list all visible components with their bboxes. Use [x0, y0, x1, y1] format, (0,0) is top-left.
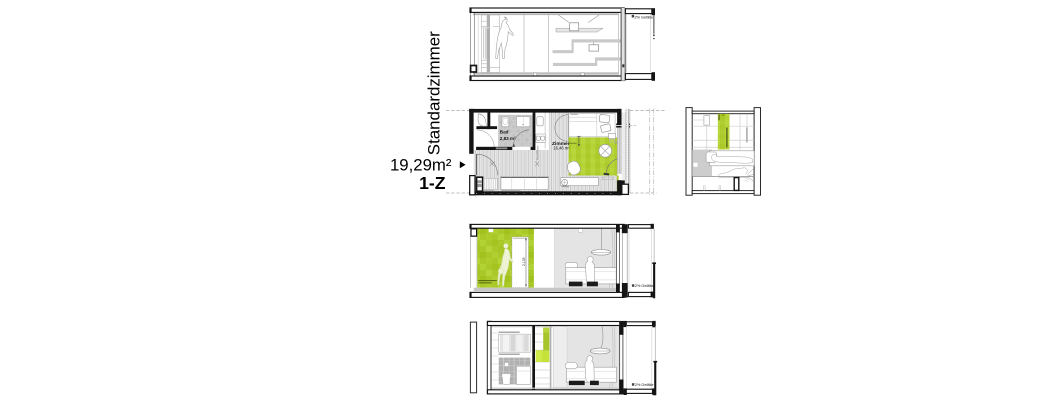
svg-text:2,83 m²: 2,83 m² [500, 136, 516, 141]
svg-text:2,135: 2,135 [522, 257, 526, 266]
svg-text:Standardzimmer: Standardzimmer [425, 31, 444, 155]
svg-text:2% Gefälle: 2% Gefälle [635, 284, 654, 288]
svg-text:16,46 m²: 16,46 m² [553, 145, 570, 150]
svg-text:Bad: Bad [500, 130, 509, 135]
svg-text:2% Gefälle: 2% Gefälle [635, 383, 654, 387]
svg-text:1-Z: 1-Z [419, 173, 446, 193]
svg-text:Abstellfläche: Abstellfläche [535, 145, 539, 160]
svg-text:19,29m²: 19,29m² [390, 156, 452, 175]
svg-text:2% Gefälle: 2% Gefälle [635, 15, 654, 19]
